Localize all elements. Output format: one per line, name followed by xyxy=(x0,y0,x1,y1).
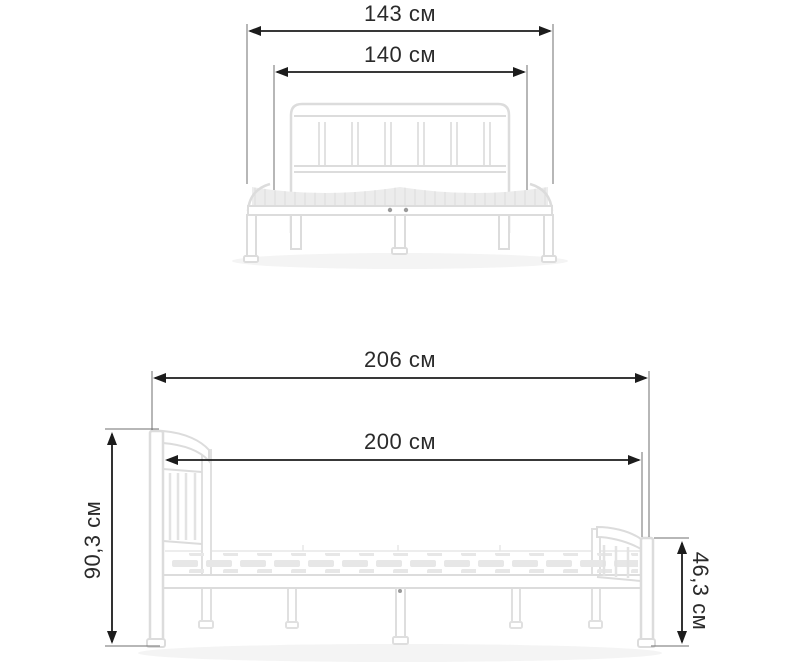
dim-label-footboard-height: 46,3 см xyxy=(687,531,713,651)
diagram-artwork xyxy=(0,0,800,670)
bed-dimensions-diagram: 143 см 140 см 206 см 200 см 90,3 см 46,3… xyxy=(0,0,800,670)
side-view-illustration xyxy=(138,431,662,662)
dim-label-inner-width: 140 см xyxy=(300,42,500,68)
dim-label-overall-length: 206 см xyxy=(300,347,500,373)
front-view-illustration xyxy=(232,104,568,269)
dim-label-overall-width: 143 см xyxy=(300,1,500,27)
headboard-side-bars xyxy=(170,473,195,540)
dim-label-inner-length: 200 см xyxy=(300,429,500,455)
dim-label-headboard-height: 90,3 см xyxy=(80,480,106,600)
